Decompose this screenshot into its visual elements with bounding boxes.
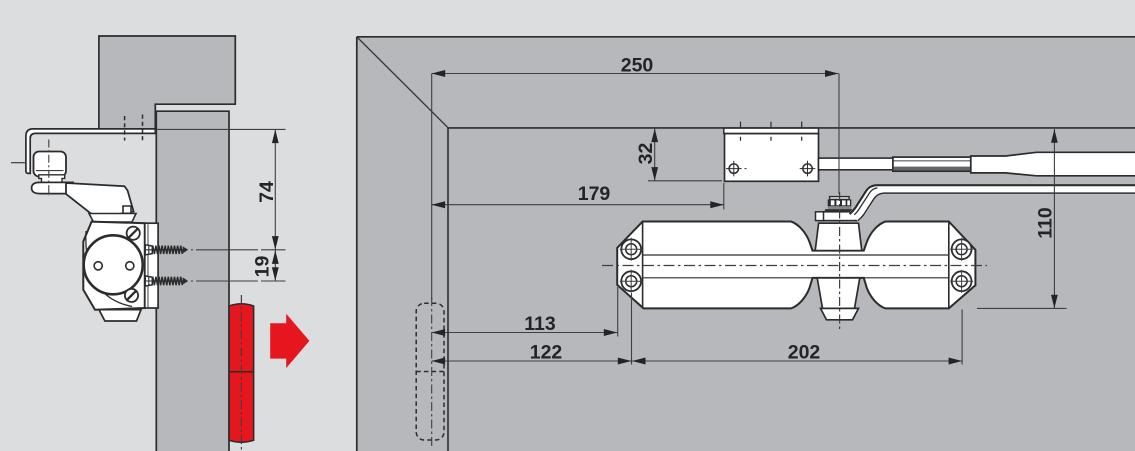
svg-text:202: 202 <box>788 341 821 363</box>
svg-text:110: 110 <box>1035 207 1057 239</box>
svg-text:113: 113 <box>524 313 556 335</box>
svg-text:74: 74 <box>256 181 278 203</box>
svg-text:32: 32 <box>635 143 657 165</box>
svg-text:179: 179 <box>578 183 611 205</box>
svg-text:122: 122 <box>530 342 563 364</box>
svg-text:19: 19 <box>252 256 274 278</box>
svg-text:250: 250 <box>621 54 654 76</box>
